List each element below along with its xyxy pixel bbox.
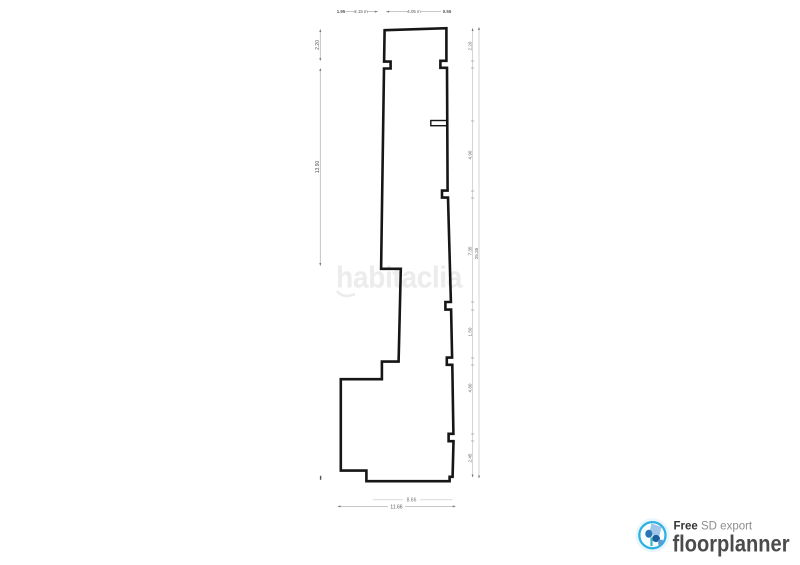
svg-text:1.50: 1.50 [467, 327, 472, 336]
svg-text:floorplanner: floorplanner [673, 531, 790, 557]
svg-text:0.55: 0.55 [443, 9, 452, 14]
svg-text:2.15 m: 2.15 m [354, 9, 368, 14]
svg-text:4.80: 4.80 [467, 383, 472, 392]
svg-text:2.20: 2.20 [467, 41, 472, 50]
svg-text:11.66: 11.66 [390, 504, 402, 510]
svg-text:2.45: 2.45 [467, 453, 472, 462]
svg-text:8.66: 8.66 [407, 498, 417, 504]
svg-text:2.20: 2.20 [315, 40, 321, 50]
svg-text:7.35: 7.35 [467, 246, 472, 255]
svg-text:1.95: 1.95 [337, 9, 346, 14]
svg-text:4.90: 4.90 [467, 150, 472, 159]
svg-text:4.05 m: 4.05 m [407, 9, 421, 14]
svg-text:13.90: 13.90 [315, 161, 321, 174]
svg-text:25.35: 25.35 [474, 247, 479, 259]
